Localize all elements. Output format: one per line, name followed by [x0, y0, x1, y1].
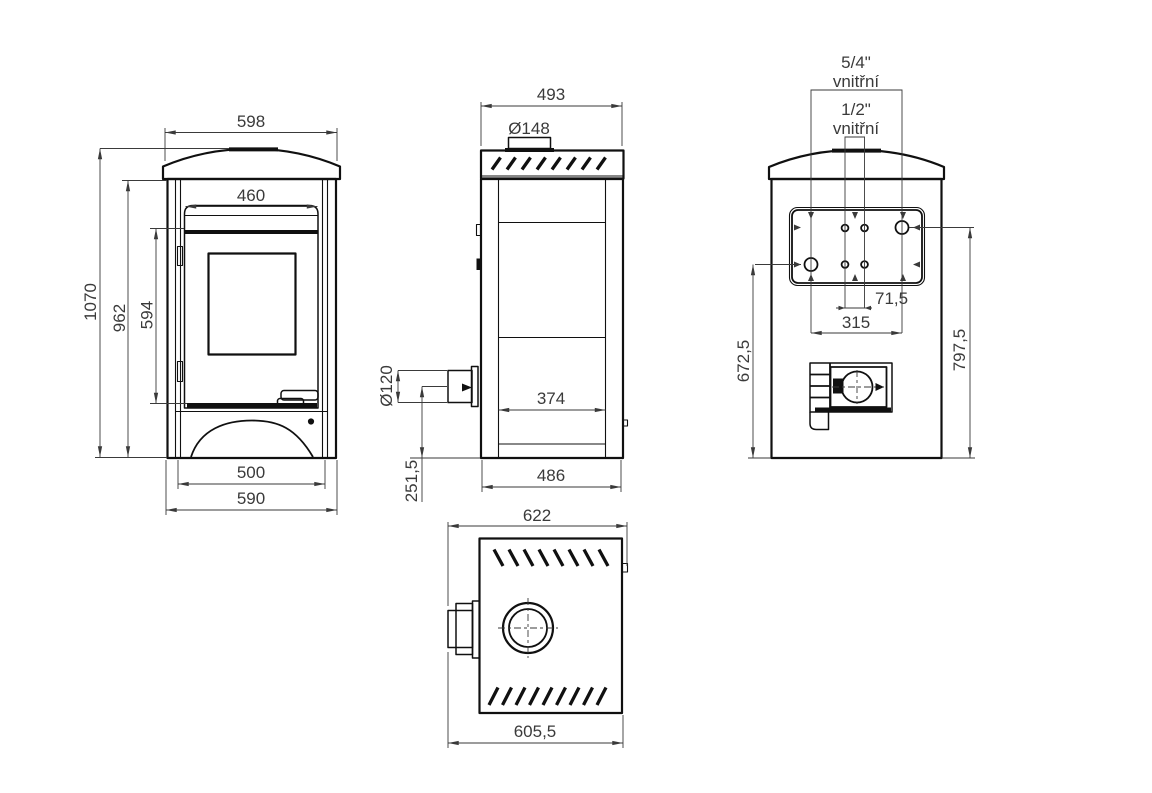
side-fitting-stub-lower — [477, 259, 482, 271]
front-pilaster-lines — [176, 179, 328, 458]
top-view: 622 605,5 — [448, 506, 628, 748]
label-large-fitting-size: 5/4" — [841, 53, 871, 72]
top-collar-centerlines — [498, 598, 558, 658]
dim-left-fitting-height: 672,5 — [734, 340, 753, 383]
dim-top-width: 598 — [237, 112, 265, 131]
dim-right-fitting-height: 797,5 — [950, 329, 969, 372]
dim-overall-height: 1070 — [81, 283, 100, 321]
back-outlet-bracket — [810, 412, 829, 430]
back-outlet-louvers — [810, 363, 830, 412]
dim-depth: 493 — [537, 85, 565, 104]
front-door-frame — [185, 206, 319, 409]
side-divider-lines — [499, 223, 606, 445]
ext-lines-6725 — [748, 265, 801, 459]
ext-lines-493 — [481, 102, 622, 146]
dim-body-height: 962 — [110, 304, 129, 332]
front-air-knob — [308, 418, 314, 424]
front-view: 598 460 1070 962 594 500 590 — [81, 112, 340, 515]
dim-rear-flue-center-height: 251,5 — [402, 460, 421, 503]
side-body — [481, 179, 623, 458]
dim-rear-flue-diameter: Ø120 — [377, 365, 396, 407]
side-wall-lines — [499, 179, 606, 458]
dim-collar-diameter: Ø148 — [508, 119, 550, 138]
dim-base-inner-width: 500 — [237, 463, 265, 482]
front-plinth-arch — [191, 421, 313, 458]
dim-base-width: 590 — [237, 489, 265, 508]
top-vent-slots-rear — [489, 688, 606, 706]
drawing-page: 598 460 1070 962 594 500 590 — [0, 0, 1152, 793]
back-panel-outer — [790, 208, 925, 286]
back-top-plate — [769, 150, 944, 179]
back-view: 5/4" vnitřní 1/2" vnitřní 71,5 315 672,5… — [734, 53, 975, 458]
back-outlet-latch — [833, 379, 844, 394]
label-small-fitting-size: 1/2" — [841, 100, 871, 119]
dim-door-height: 594 — [138, 301, 157, 329]
dim-small-fitting-spacing: 71,5 — [875, 289, 908, 308]
side-flue-collar — [509, 138, 551, 149]
dim-door-width: 460 — [237, 186, 265, 205]
top-vent-slots-front — [494, 550, 608, 567]
top-rear-flue-pipe — [448, 611, 473, 648]
dim-inner-depth: 374 — [537, 389, 565, 408]
dim-overall-depth: 622 — [523, 506, 551, 525]
front-door-glass — [209, 254, 296, 355]
dim-base-depth: 486 — [537, 466, 565, 485]
dim-large-fitting-spacing: 315 — [842, 313, 870, 332]
stove-technical-drawing: 598 460 1070 962 594 500 590 — [0, 0, 1152, 793]
dim-body-depth: 605,5 — [514, 722, 557, 741]
front-body — [168, 179, 337, 458]
back-outlet-arrow — [876, 383, 885, 391]
side-rear-flue-arrow — [462, 384, 472, 392]
label-small-fitting-type: vnitřní — [833, 119, 880, 138]
front-top-plate — [163, 149, 340, 179]
label-large-fitting-type: vnitřní — [833, 72, 880, 91]
ext-lines-622 — [448, 522, 627, 606]
side-view: 493 Ø148 Ø120 251,5 374 486 — [377, 85, 628, 502]
side-vent-slots — [492, 158, 606, 170]
